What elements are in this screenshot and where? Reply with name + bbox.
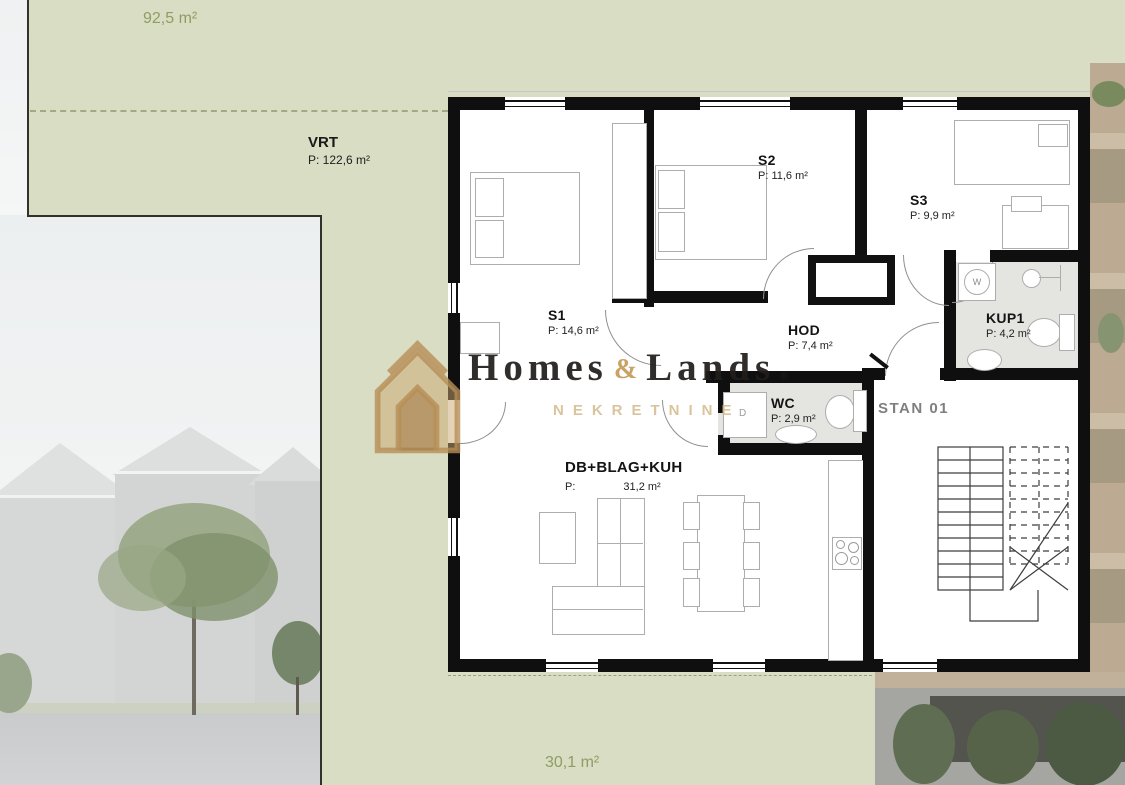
street-render-photo: [0, 215, 320, 785]
wall-stair-north: [940, 368, 1090, 380]
wall-kup1-north: [990, 250, 1078, 262]
chair: [743, 578, 760, 607]
parcel-dashed-line: [30, 110, 448, 112]
garden-label: VRT P: 122,6 m²: [308, 134, 370, 167]
pillow: [475, 220, 504, 258]
registered-mark: ®: [775, 368, 789, 387]
staircase: [935, 443, 1075, 625]
house-roof: [112, 427, 268, 475]
chair: [683, 542, 700, 570]
toilet-wc: [825, 395, 855, 429]
window: [546, 659, 598, 672]
toilet-kup1: [1027, 318, 1061, 347]
room-label-hod: HOD P: 7,4 m²: [788, 322, 833, 352]
roof-overhang-line: [448, 91, 1090, 92]
garden-area: P: 122,6 m²: [308, 153, 370, 167]
watermark-subtitle: NEKRETNINE: [553, 402, 741, 419]
chair: [683, 502, 700, 530]
wall-east: [1078, 97, 1090, 672]
sink-kup1: [967, 349, 1002, 371]
sofa-seam: [597, 543, 643, 544]
living-area-value: 31,2 m²: [623, 481, 660, 493]
exterior-hatch-line: [448, 675, 872, 676]
sofa-seam: [552, 609, 643, 610]
shower-icon: [1022, 269, 1041, 288]
wardrobe-s1: [612, 123, 647, 299]
shower-rail: [1060, 265, 1061, 291]
agency-logo-icon: [370, 330, 465, 455]
sofa-horizontal: [552, 586, 645, 635]
room-label-living: DB+BLAG+KUH P: 31,2 m²: [565, 459, 682, 493]
brand-word-1: Homes: [468, 348, 608, 387]
room-label-wc: WC P: 2,9 m²: [771, 395, 816, 425]
chair-s3: [1011, 196, 1042, 212]
washing-machine-drum: W: [964, 269, 990, 295]
site-boundary-bottom: [27, 215, 322, 217]
window: [713, 659, 765, 672]
tree-trunk: [296, 677, 299, 715]
burner: [836, 540, 845, 549]
tree: [967, 710, 1039, 784]
left-edge-sky: [0, 0, 27, 215]
area-label-bottom: 30,1 m²: [545, 754, 599, 772]
room-label-s3: S3 P: 9,9 m²: [910, 192, 955, 222]
burner: [850, 556, 859, 565]
unit-label: STAN 01: [878, 400, 949, 417]
floor-plan-page: 92,5 m² 30,1 m² VRT P: 122,6 m²: [0, 0, 1125, 785]
brand-word-2: Lands: [646, 348, 775, 387]
room-label-s2: S2 P: 11,6 m²: [758, 152, 808, 182]
tree-canopy: [98, 545, 186, 611]
window: [448, 283, 460, 313]
shower-arm: [1039, 277, 1061, 278]
room-label-s1: S1 P: 14,6 m²: [548, 307, 599, 337]
tree: [1045, 702, 1125, 785]
washer-letter: W: [973, 277, 982, 287]
window: [448, 518, 460, 556]
wall-south: [448, 659, 1090, 672]
roof-edge: [875, 672, 1125, 688]
dining-table: [697, 495, 745, 612]
terrace-plants: [1098, 313, 1124, 353]
window: [883, 659, 937, 672]
site-boundary-left: [27, 0, 29, 217]
burner: [848, 542, 859, 553]
brand-ampersand: &: [608, 356, 646, 387]
wall-s2-s3: [855, 110, 867, 259]
pillow: [1038, 124, 1068, 147]
chair: [743, 502, 760, 530]
room-label-kup1: KUP1 P: 4,2 m²: [986, 310, 1031, 340]
coffee-table: [539, 512, 576, 564]
road: [0, 713, 320, 785]
site-boundary-vertical: [320, 215, 322, 785]
sink-wc: [775, 425, 817, 444]
window: [903, 97, 957, 110]
house-roof: [248, 447, 320, 485]
wall-wc-south: [718, 443, 862, 455]
hall-closet-niche: [808, 255, 895, 305]
pillow: [658, 170, 685, 209]
window: [700, 97, 790, 110]
small-tree: [272, 621, 320, 685]
chair: [743, 542, 760, 570]
burner: [835, 552, 848, 565]
toilet-tank-kup1: [1059, 314, 1075, 351]
chair: [683, 578, 700, 607]
watermark-brand: Homes & Lands ®: [468, 348, 789, 387]
wall-stair-north: [862, 368, 885, 380]
garden-name: VRT: [308, 134, 370, 151]
courtyard-render-photo: [875, 672, 1125, 785]
pillow: [658, 212, 685, 252]
window: [505, 97, 565, 110]
area-label-top: 92,5 m²: [143, 10, 197, 28]
toilet-tank-wc: [853, 390, 867, 432]
pillow: [475, 178, 504, 217]
roof-plants: [1092, 81, 1125, 107]
living-area-prefix: P:: [565, 481, 575, 493]
tree: [893, 704, 955, 784]
